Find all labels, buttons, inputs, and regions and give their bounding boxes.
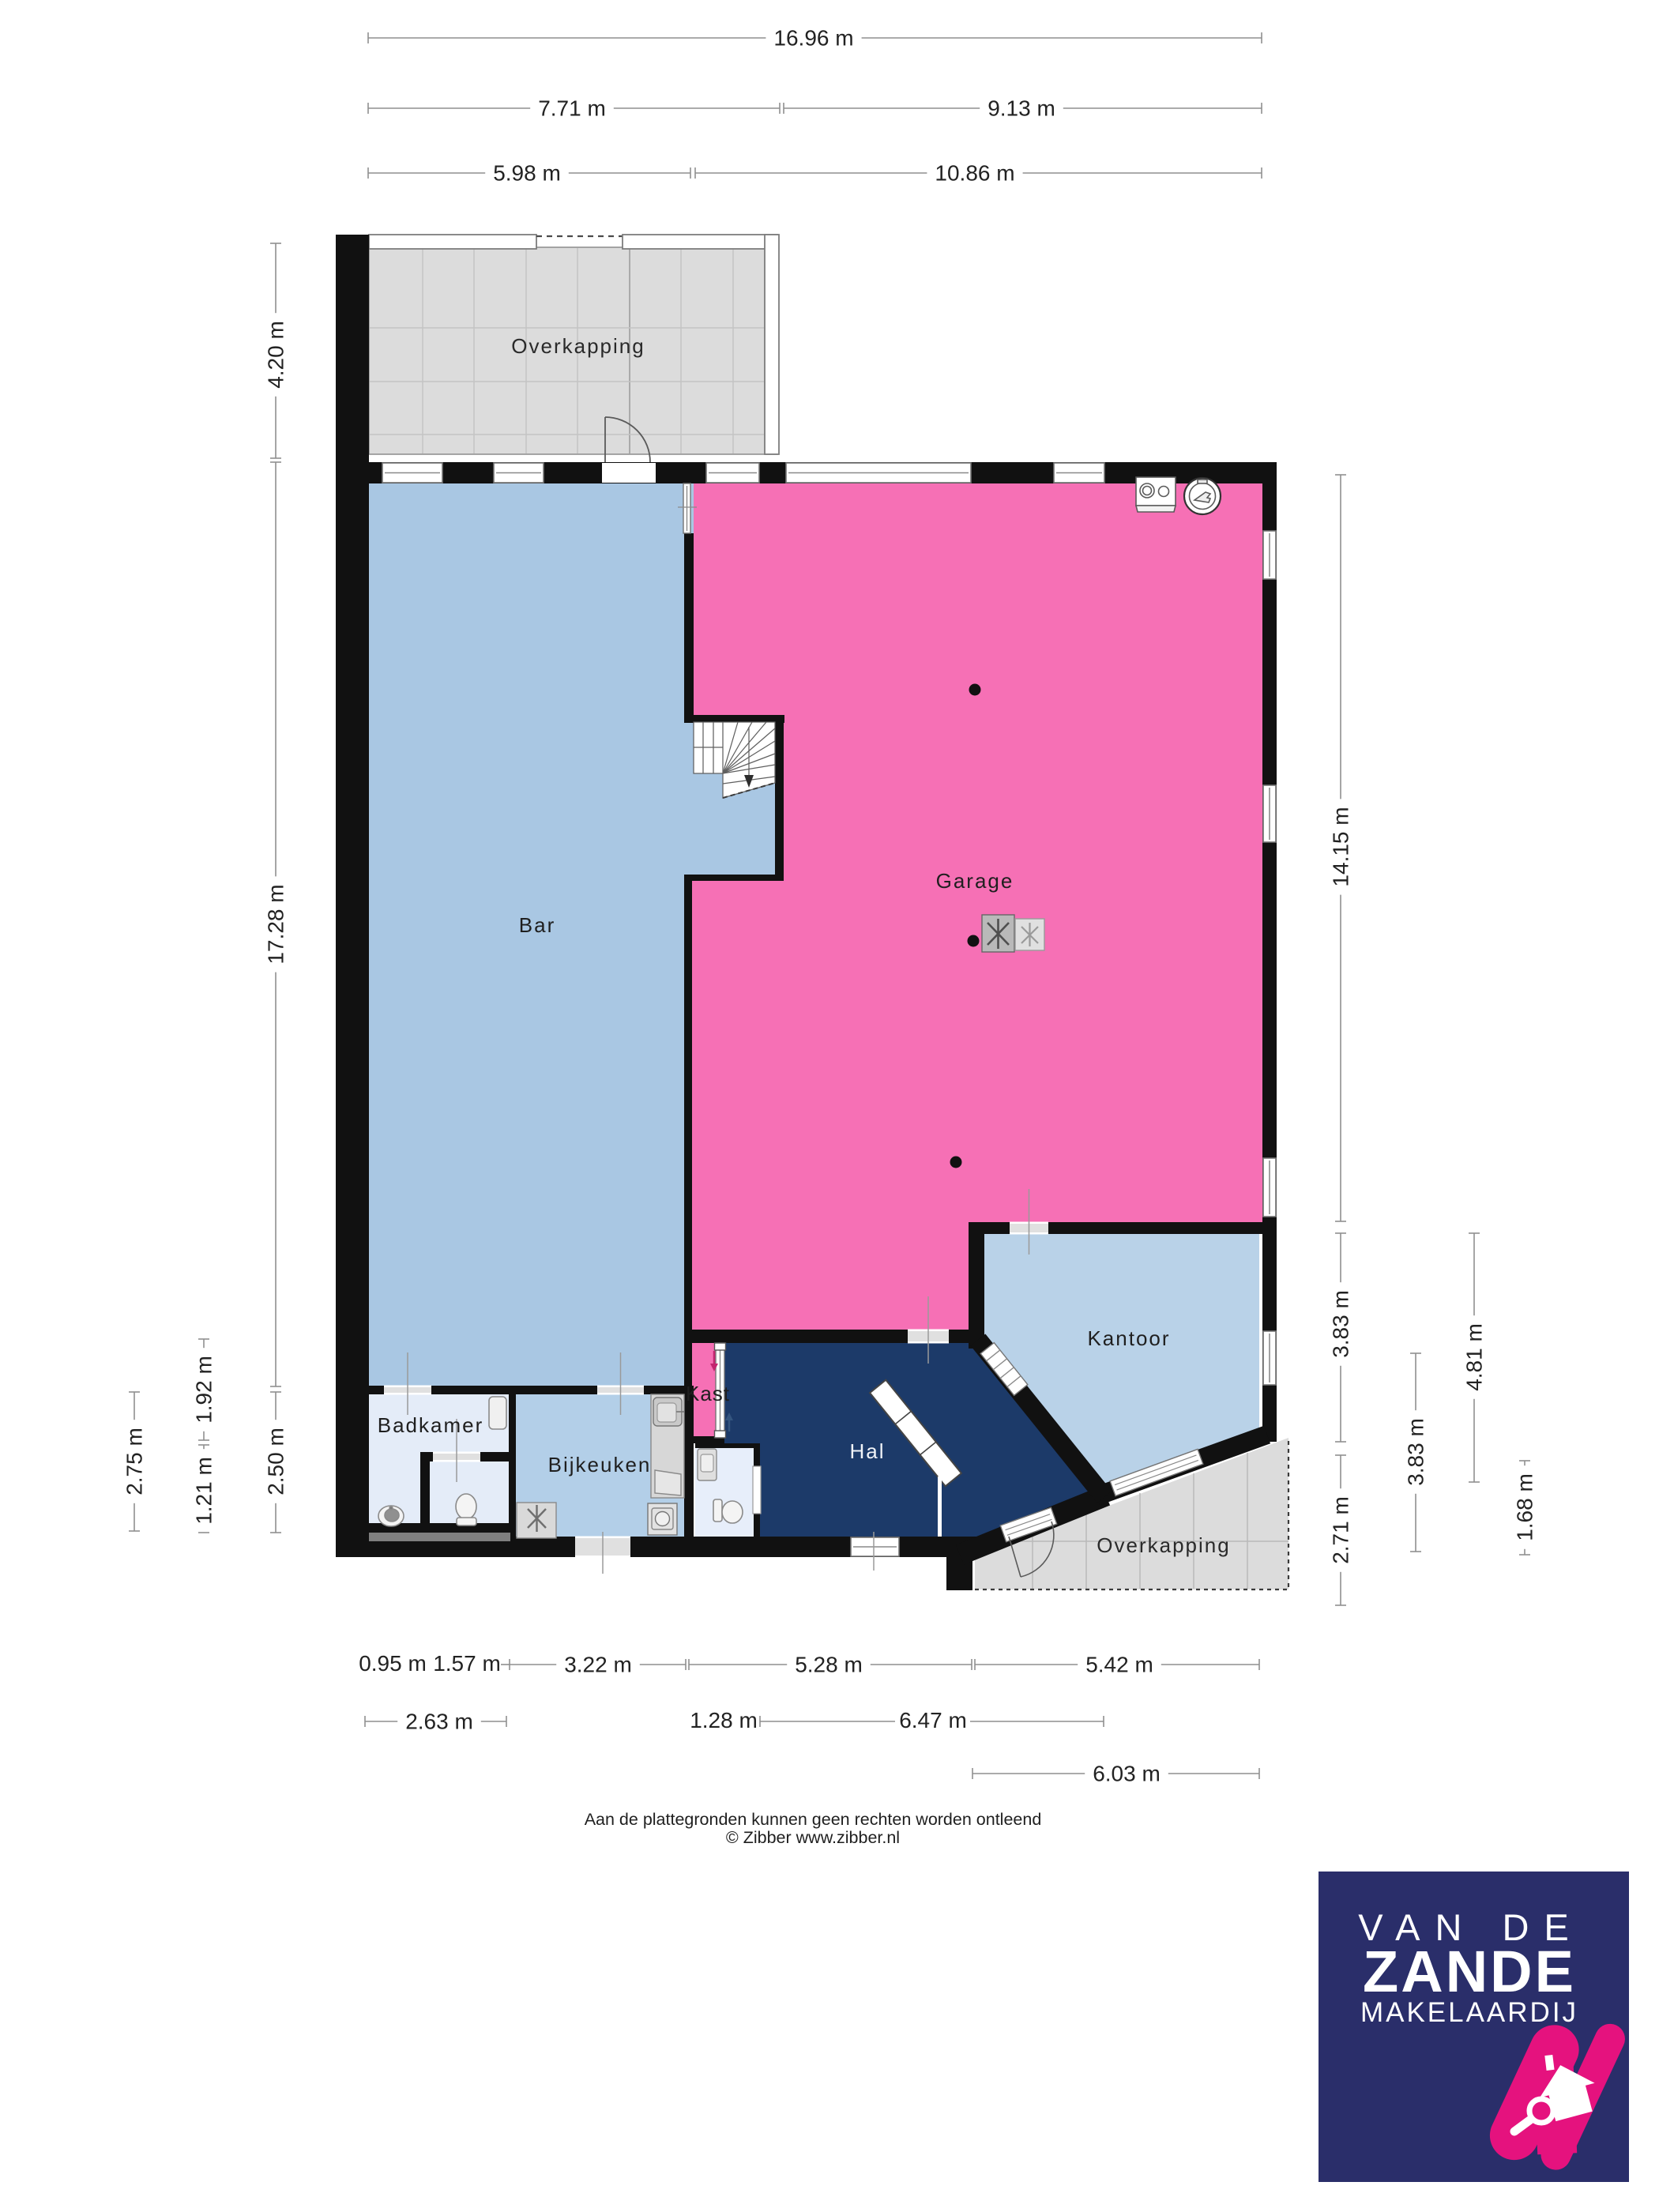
svg-text:5.98 m: 5.98 m bbox=[493, 161, 561, 186]
svg-text:Kantoor: Kantoor bbox=[1087, 1326, 1170, 1350]
svg-text:Overkapping: Overkapping bbox=[1097, 1533, 1230, 1557]
svg-text:Kast: Kast bbox=[686, 1382, 730, 1405]
svg-text:Hal: Hal bbox=[849, 1439, 885, 1463]
svg-text:2.75 m: 2.75 m bbox=[122, 1428, 147, 1495]
svg-text:7.71 m: 7.71 m bbox=[538, 96, 606, 121]
svg-text:4.81 m: 4.81 m bbox=[1462, 1323, 1487, 1391]
svg-text:10.86 m: 10.86 m bbox=[935, 161, 1014, 186]
svg-text:5.28 m: 5.28 m bbox=[795, 1653, 863, 1677]
svg-text:2.63 m: 2.63 m bbox=[405, 1710, 473, 1734]
svg-text:0.95 m: 0.95 m bbox=[359, 1651, 427, 1676]
svg-text:1.92 m: 1.92 m bbox=[192, 1356, 216, 1424]
svg-text:5.42 m: 5.42 m bbox=[1085, 1653, 1153, 1677]
svg-text:1.28 m: 1.28 m bbox=[690, 1708, 758, 1732]
svg-text:3.83 m: 3.83 m bbox=[1404, 1418, 1428, 1486]
svg-text:9.13 m: 9.13 m bbox=[987, 96, 1055, 121]
svg-text:16.96 m: 16.96 m bbox=[773, 26, 853, 51]
svg-text:14.15 m: 14.15 m bbox=[1329, 807, 1353, 886]
svg-text:MAKELAARDIJ: MAKELAARDIJ bbox=[1360, 1997, 1578, 2028]
svg-text:1.57 m: 1.57 m bbox=[433, 1651, 501, 1676]
svg-text:6.47 m: 6.47 m bbox=[899, 1708, 967, 1732]
svg-text:6.03 m: 6.03 m bbox=[1093, 1762, 1161, 1786]
svg-text:Badkamer: Badkamer bbox=[378, 1413, 484, 1437]
svg-text:3.22 m: 3.22 m bbox=[564, 1653, 632, 1677]
svg-text:4.20 m: 4.20 m bbox=[264, 321, 288, 389]
svg-text:Bijkeuken: Bijkeuken bbox=[548, 1453, 652, 1477]
svg-text:1.21 m: 1.21 m bbox=[192, 1457, 216, 1525]
svg-text:2.50 m: 2.50 m bbox=[264, 1428, 288, 1495]
svg-text:Bar: Bar bbox=[519, 913, 555, 937]
svg-text:Overkapping: Overkapping bbox=[511, 334, 645, 358]
svg-text:Garage: Garage bbox=[936, 869, 1014, 893]
svg-text:© Zibber www.zibber.nl: © Zibber www.zibber.nl bbox=[726, 1828, 900, 1847]
svg-text:17.28 m: 17.28 m bbox=[264, 884, 288, 964]
svg-text:ZANDE: ZANDE bbox=[1363, 1939, 1576, 2004]
svg-text:2.71 m: 2.71 m bbox=[1329, 1496, 1353, 1564]
svg-text:Aan de plattegronden kunnen ge: Aan de plattegronden kunnen geen rechten… bbox=[585, 1810, 1042, 1829]
svg-text:1.68 m: 1.68 m bbox=[1513, 1473, 1537, 1541]
svg-text:3.83 m: 3.83 m bbox=[1329, 1290, 1353, 1358]
